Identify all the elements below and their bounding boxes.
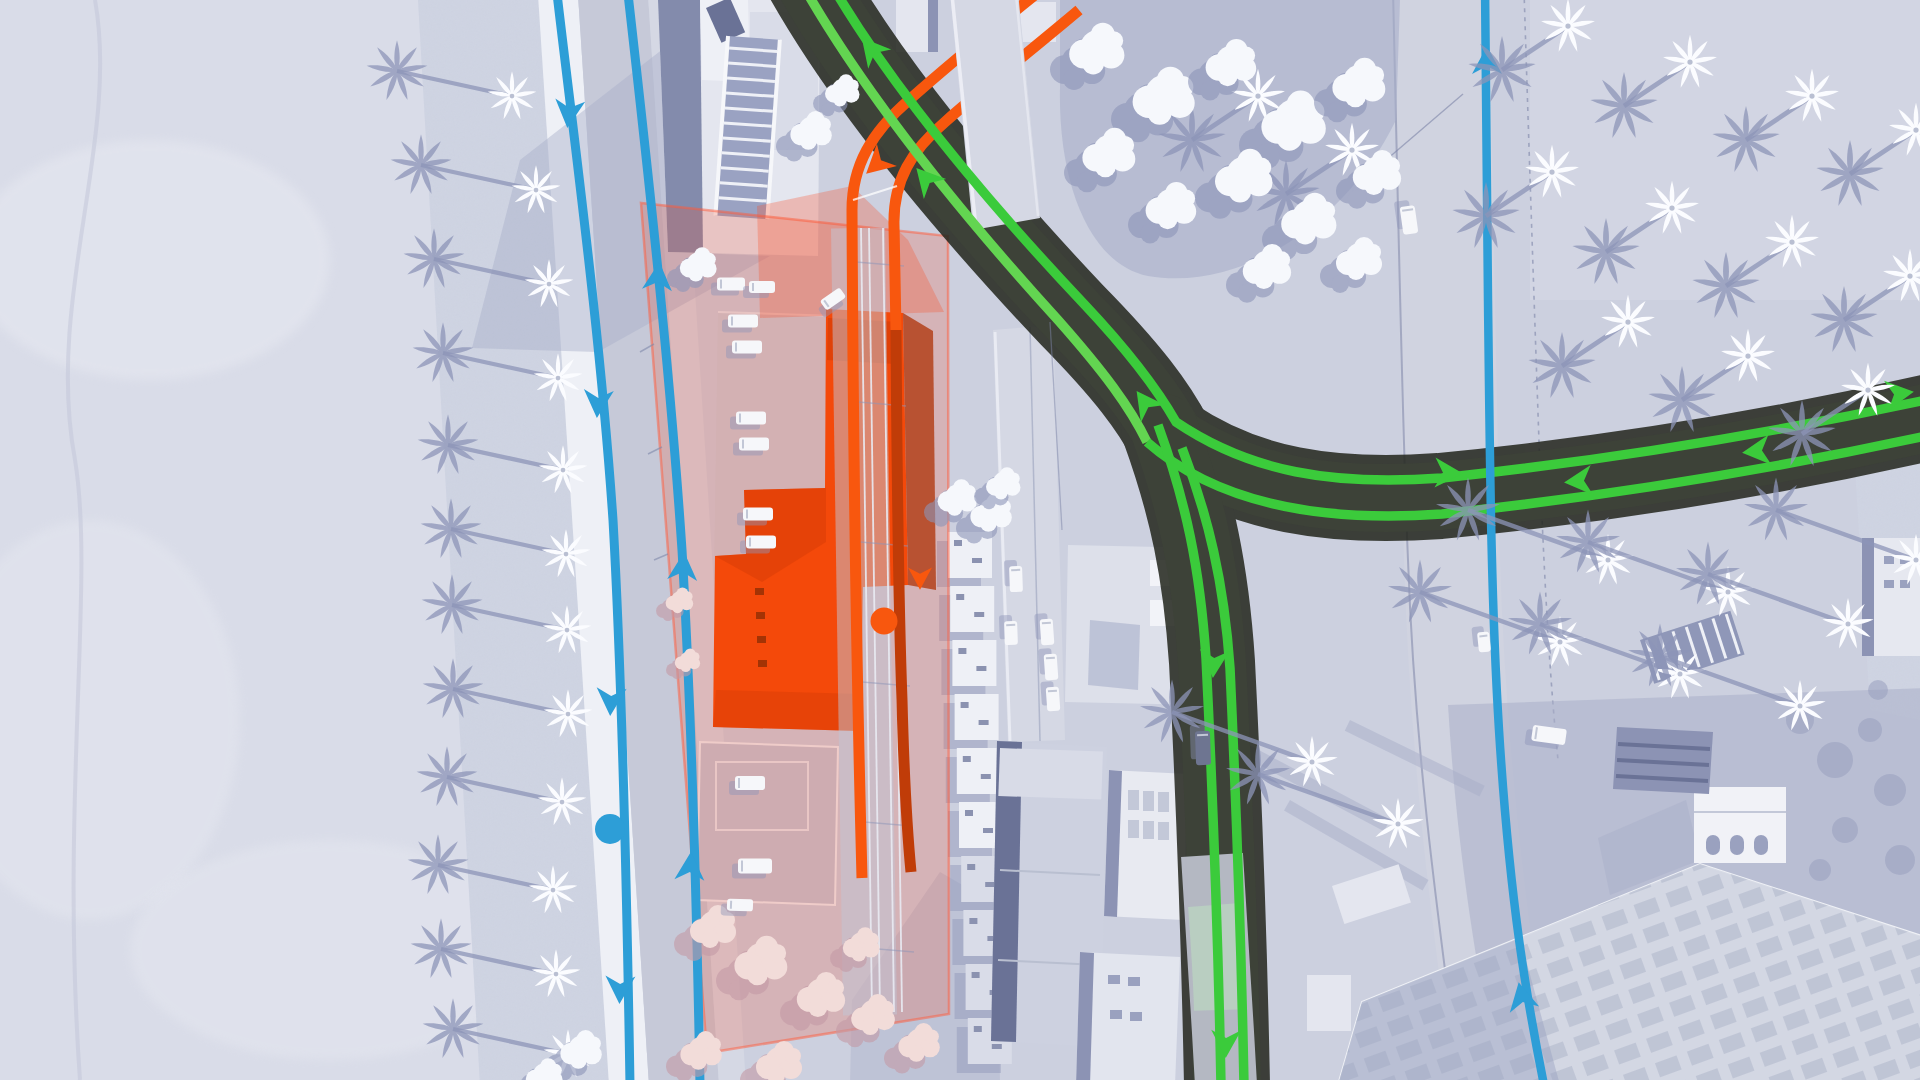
game-viewport[interactable] (0, 0, 1920, 1080)
parked-car (732, 859, 772, 879)
building-dark-rows[interactable] (1613, 727, 1713, 794)
station-east-wall (903, 313, 936, 590)
staircase (715, 36, 779, 219)
blue-stop[interactable] (595, 814, 625, 844)
orange-stop[interactable] (871, 608, 898, 635)
